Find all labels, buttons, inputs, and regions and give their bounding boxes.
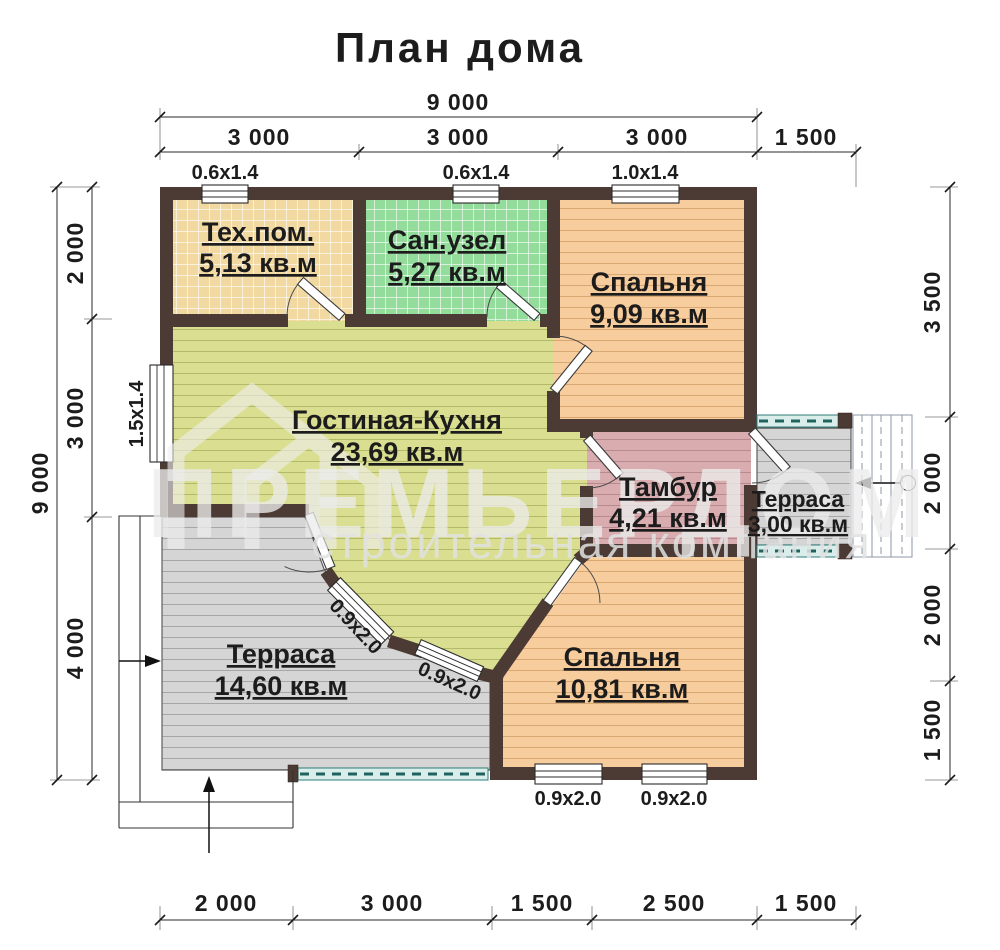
room-label-terrace-small-area: 3,00 кв.м bbox=[748, 511, 848, 537]
window-bedroom-bot-1 bbox=[535, 764, 602, 784]
dim-top-seg-3: 3 000 bbox=[626, 124, 689, 150]
bottom-steps bbox=[119, 770, 293, 828]
dim-bottom-seg-1: 2 000 bbox=[195, 890, 258, 916]
room-label-bedroom-bot-name: Спальня bbox=[564, 642, 681, 672]
dim-left: 9 000 2 000 3 000 4 000 bbox=[27, 182, 112, 785]
room-label-terrace-small-name: Терраса bbox=[752, 486, 845, 512]
window-bedroom-bot-2 bbox=[642, 764, 707, 784]
terrace-small-railing-top bbox=[757, 413, 852, 428]
room-label-living-name: Гостиная-Кухня bbox=[292, 405, 502, 435]
window-label-2: 0.6x1.4 bbox=[443, 162, 511, 184]
room-label-bedroom-bot-area: 10,81 кв.м bbox=[556, 674, 689, 704]
window-label-4: 1.5x1.4 bbox=[126, 380, 148, 448]
window-label-3: 1.0x1.4 bbox=[612, 162, 680, 184]
dim-top-total: 9 000 bbox=[427, 89, 490, 115]
dim-top-seg-2: 3 000 bbox=[427, 124, 490, 150]
room-label-tambour-name: Тамбур bbox=[619, 472, 717, 502]
window-bedroom-top bbox=[612, 185, 679, 203]
window-label-8: 0.9x2.0 bbox=[641, 788, 708, 810]
dim-bottom: 2 000 3 000 1 500 2 500 1 500 bbox=[155, 890, 861, 930]
window-tech bbox=[202, 185, 248, 203]
dim-bottom-seg-5: 1 500 bbox=[775, 890, 838, 916]
room-label-tambour-area: 4,21 кв.м bbox=[609, 503, 727, 533]
page-title: План дома bbox=[335, 24, 585, 71]
dim-right: 3 500 2 000 2 000 1 500 bbox=[919, 182, 958, 785]
room-label-terrace-big-name: Терраса bbox=[227, 639, 337, 669]
floor-plan-page: ПРЕМЬЕРДОМ строительная компания Тех.пом… bbox=[0, 0, 1000, 950]
room-label-bedroom-top-area: 9,09 кв.м bbox=[590, 299, 708, 329]
room-label-terrace-big-area: 14,60 кв.м bbox=[215, 671, 348, 701]
room-label-tech-name: Тех.пом. bbox=[202, 217, 314, 247]
dim-right-seg-2: 2 000 bbox=[919, 452, 945, 515]
room-label-bedroom-top-name: Спальня bbox=[591, 267, 708, 297]
dim-left-seg-1: 2 000 bbox=[62, 222, 88, 285]
left-steps bbox=[119, 516, 162, 828]
floor-plan-canvas: ПРЕМЬЕРДОМ строительная компания Тех.пом… bbox=[0, 0, 1000, 950]
room-label-tech-area: 5,13 кв.м bbox=[199, 248, 317, 278]
dim-left-seg-2: 3 000 bbox=[62, 387, 88, 450]
bottom-entrance-arrow bbox=[203, 776, 215, 853]
dim-top-seg-4: 1 500 bbox=[775, 124, 838, 150]
dim-left-total: 9 000 bbox=[27, 452, 53, 515]
dim-top-seg-1: 3 000 bbox=[228, 124, 291, 150]
dim-bottom-seg-2: 3 000 bbox=[361, 890, 424, 916]
terrace-big-railing bbox=[288, 765, 488, 782]
dim-right-seg-4: 1 500 bbox=[919, 699, 945, 762]
window-label-7: 0.9x2.0 bbox=[535, 788, 602, 810]
dim-bottom-seg-3: 1 500 bbox=[511, 890, 574, 916]
dim-right-seg-1: 3 500 bbox=[919, 271, 945, 334]
dim-right-seg-3: 2 000 bbox=[919, 584, 945, 647]
room-label-san-name: Сан.узел bbox=[388, 225, 507, 255]
dim-left-seg-3: 4 000 bbox=[62, 617, 88, 680]
room-label-san-area: 5,27 кв.м bbox=[388, 257, 506, 287]
window-label-1: 0.6x1.4 bbox=[192, 162, 260, 184]
window-san bbox=[453, 185, 499, 203]
dim-bottom-seg-4: 2 500 bbox=[643, 890, 706, 916]
room-label-living-area: 23,69 кв.м bbox=[331, 437, 464, 467]
